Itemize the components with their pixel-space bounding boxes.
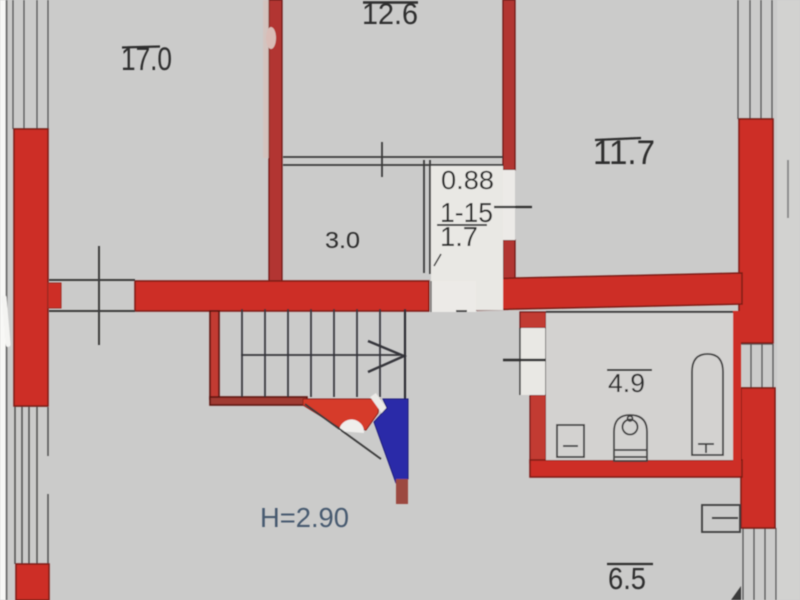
svg-text:6.5: 6.5 [608, 561, 646, 596]
svg-text:12.6: 12.6 [362, 0, 418, 31]
svg-text:3.0: 3.0 [325, 227, 360, 253]
svg-text:H=2.90: H=2.90 [260, 502, 349, 533]
svg-text:4.9: 4.9 [608, 368, 645, 398]
svg-text:1.7: 1.7 [440, 221, 478, 252]
svg-text:0.88: 0.88 [441, 165, 494, 195]
